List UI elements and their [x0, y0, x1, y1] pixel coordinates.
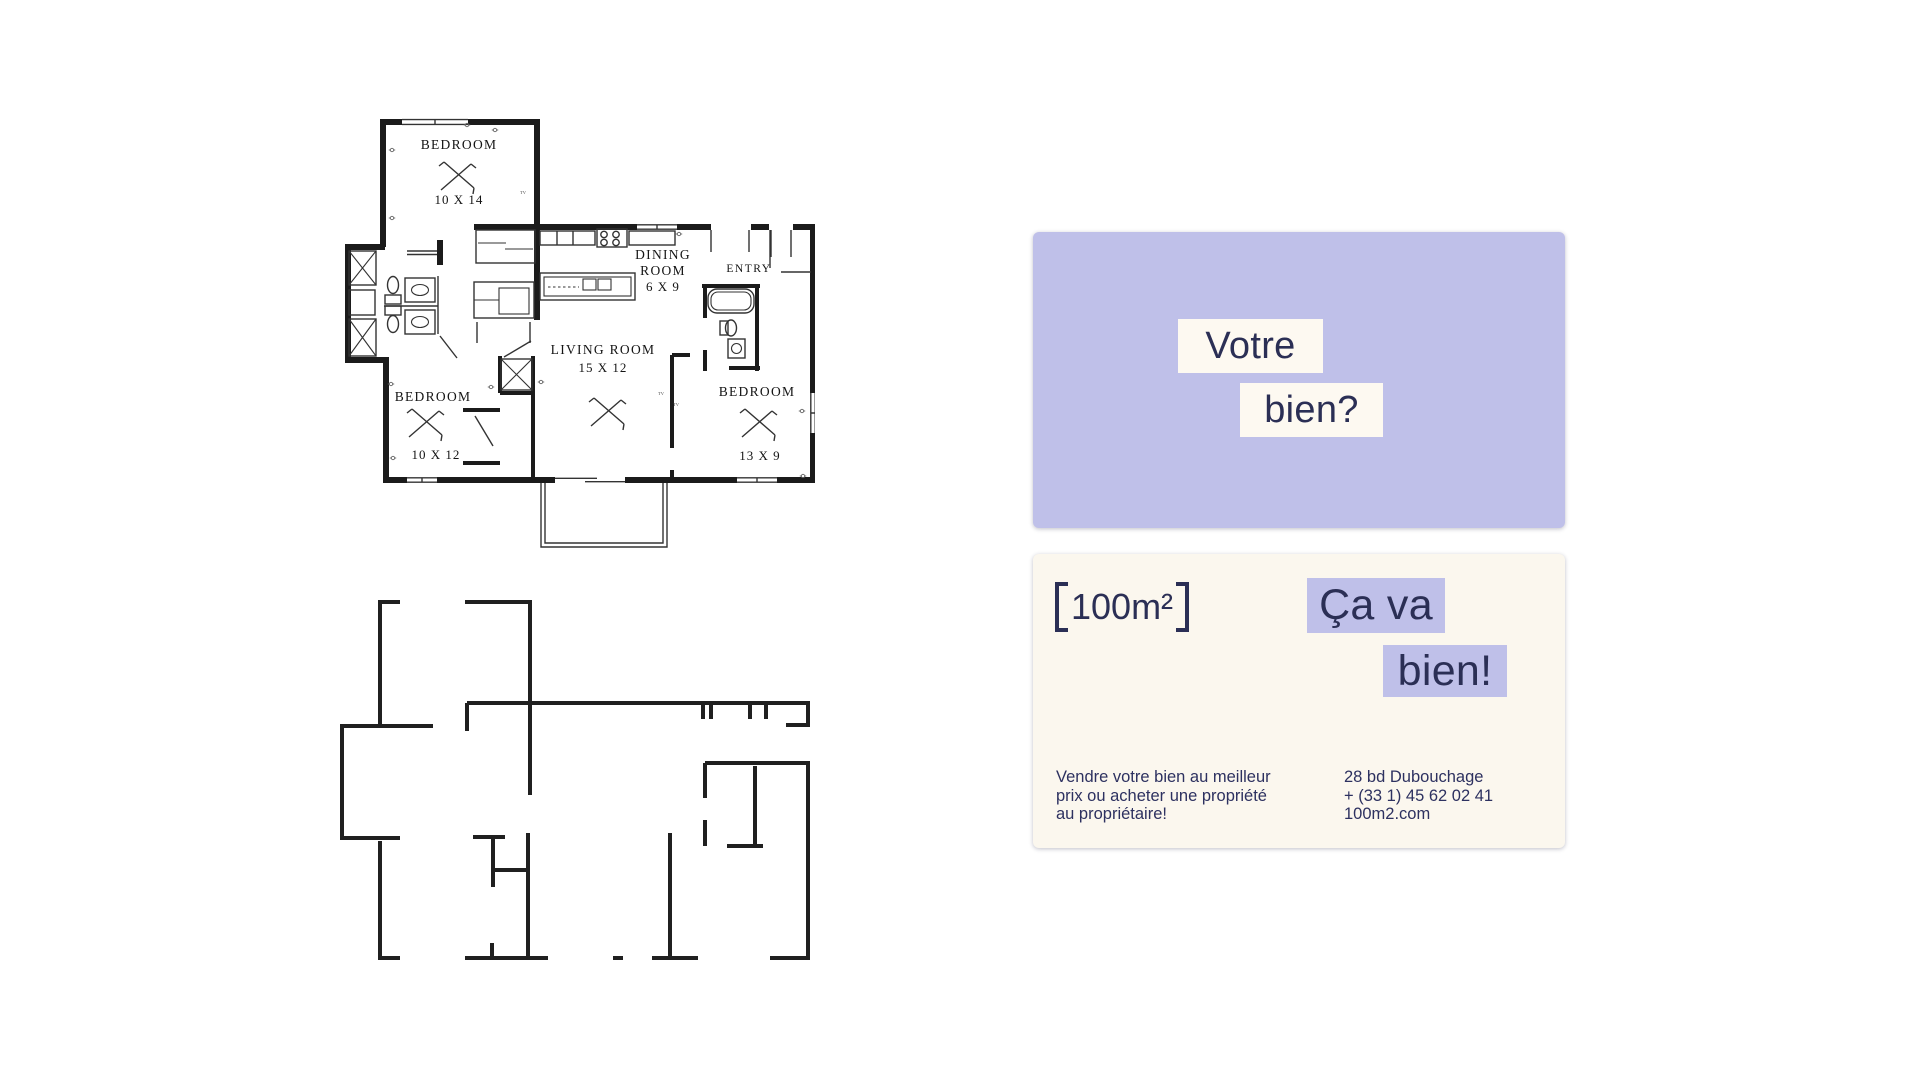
- room-dims-bedroom-left: 10 X 12: [412, 447, 461, 462]
- floorplan-outline: [335, 595, 815, 975]
- answer-card: 100m² Ça va bien! Vendre votre bien au m…: [1033, 554, 1565, 848]
- question-word-2: bien?: [1240, 383, 1383, 437]
- pitch-line-2: prix ou acheter une propriété: [1056, 787, 1271, 806]
- room-dims-living: 15 X 12: [579, 360, 628, 375]
- logo-bracket-left-icon: [1055, 582, 1068, 632]
- brand-logo: 100m²: [1055, 580, 1189, 634]
- pitch-line-3: au propriétaire!: [1056, 805, 1271, 824]
- answer-word-2-text: bien!: [1398, 647, 1493, 696]
- question-word-1: Votre: [1178, 319, 1323, 373]
- logo-text: 100m²: [1068, 582, 1176, 632]
- living-closet: [501, 359, 532, 390]
- question-word-2-text: bien?: [1264, 389, 1358, 432]
- room-label-bedroom-left: BEDROOM: [395, 389, 472, 404]
- pitch-text: Vendre votre bien au meilleur prix ou ac…: [1056, 768, 1271, 824]
- answer-word-1-text: Ça va: [1319, 581, 1433, 630]
- room-dims-bedroom-top: 10 X 14: [435, 192, 484, 207]
- toilet: [388, 277, 399, 294]
- sink: [583, 279, 596, 290]
- room-label-dining-1: DINING: [635, 247, 691, 262]
- outline-walls: [342, 600, 810, 960]
- patio: [541, 483, 667, 547]
- canvas: { "plan_labels": { "bedroom_top": "BEDRO…: [0, 0, 1920, 1080]
- linen-closet: [349, 290, 375, 315]
- tv-marker: TV: [520, 190, 527, 195]
- logo-bracket-right-icon: [1176, 582, 1189, 632]
- room-label-living: LIVING ROOM: [551, 342, 656, 357]
- vanity: [405, 278, 435, 302]
- room-label-dining-2: ROOM: [640, 263, 686, 278]
- vanity: [405, 310, 435, 334]
- room-dims-bedroom-right: 13 X 9: [739, 448, 780, 463]
- tv-marker: TV: [673, 402, 680, 407]
- room-dims-dining: 6 X 9: [646, 279, 680, 294]
- question-card: Votre bien?: [1033, 232, 1565, 528]
- right-bathroom-fixtures: [708, 289, 754, 358]
- room-label-bedroom-right: BEDROOM: [719, 384, 796, 399]
- answer-word-1: Ça va: [1307, 578, 1445, 633]
- room-label-bedroom-top: BEDROOM: [421, 137, 498, 152]
- pitch-line-1: Vendre votre bien au meilleur: [1056, 768, 1271, 787]
- contact-block: 28 bd Dubouchage + (33 1) 45 62 02 41 10…: [1344, 768, 1493, 824]
- toilet: [388, 316, 399, 333]
- interior-walls: [463, 286, 760, 483]
- contact-phone: + (33 1) 45 62 02 41: [1344, 787, 1493, 806]
- toilet: [726, 320, 737, 336]
- tv-marker: TV: [658, 391, 665, 396]
- bedroom-closet: [476, 230, 535, 263]
- question-word-1-text: Votre: [1205, 325, 1295, 368]
- outer-walls: [345, 119, 815, 483]
- floorplan-detailed: TV TV TV BEDROOM 10 X 14 DINING ROOM 6 X…: [345, 118, 815, 558]
- answer-word-2: bien!: [1383, 645, 1507, 697]
- room-label-entry: ENTRY: [726, 263, 771, 275]
- contact-address: 28 bd Dubouchage: [1344, 768, 1493, 787]
- contact-website: 100m2.com: [1344, 805, 1493, 824]
- left-bathroom-fixtures: [349, 251, 438, 356]
- washer: [728, 339, 745, 358]
